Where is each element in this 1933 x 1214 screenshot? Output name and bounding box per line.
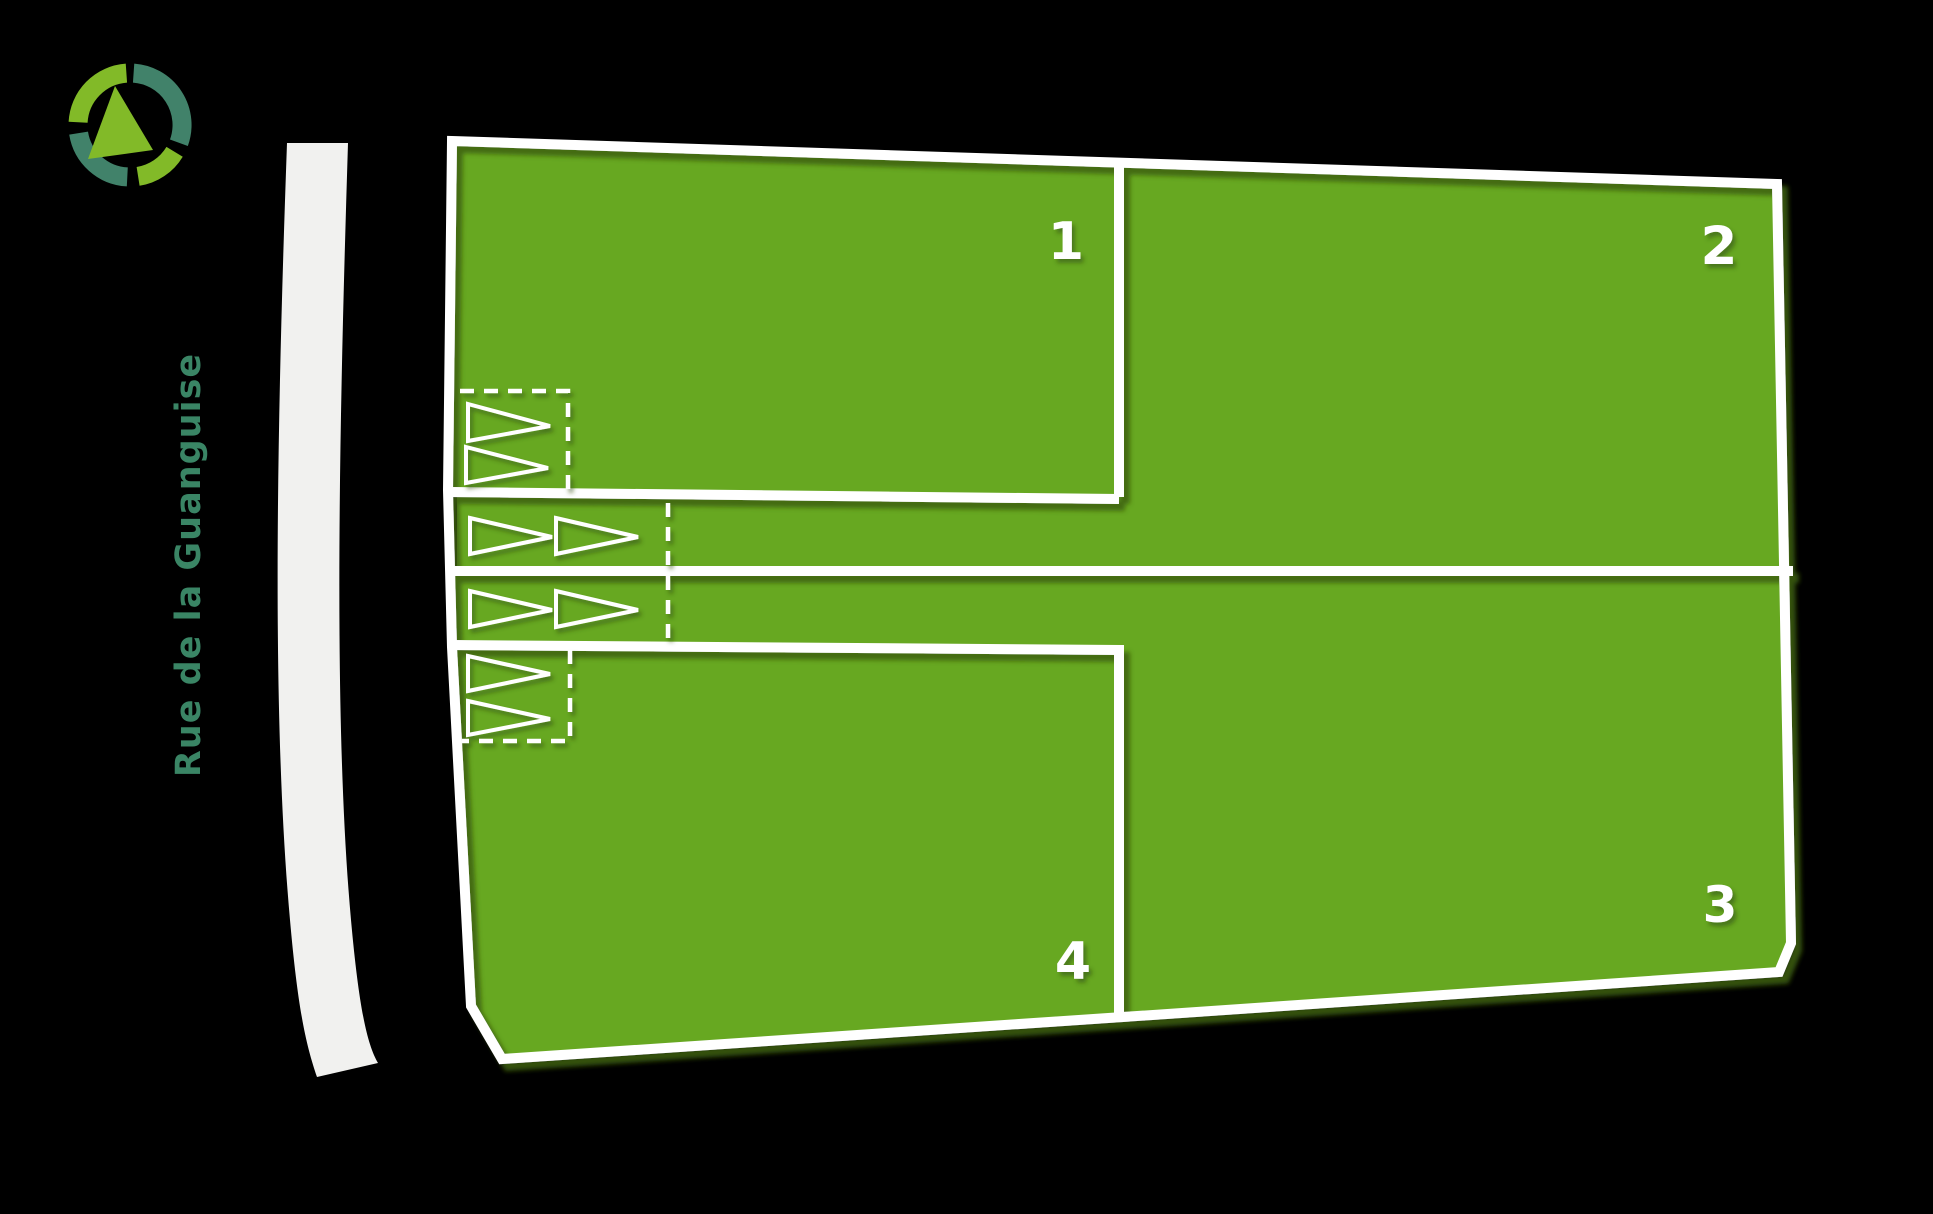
border-plot4-top [450,645,1121,650]
compass-north-icon [78,73,182,177]
plot-4-label: 4 [1055,932,1091,992]
street-name-label: Rue de la Guanguise [169,353,209,777]
plot-1-label: 1 [1048,212,1084,272]
site-plan-canvas: Rue de la Guanguise [0,0,1933,1214]
border-plot1-bottom [450,492,1119,499]
plot-2-label: 2 [1701,216,1738,277]
plot-3-label: 3 [1703,876,1738,934]
site-plan: Rue de la Guanguise [0,0,1933,1214]
road-strip [278,143,378,1077]
plot-area-4[interactable] [452,647,1119,1059]
plot-area-1[interactable] [449,141,1119,497]
